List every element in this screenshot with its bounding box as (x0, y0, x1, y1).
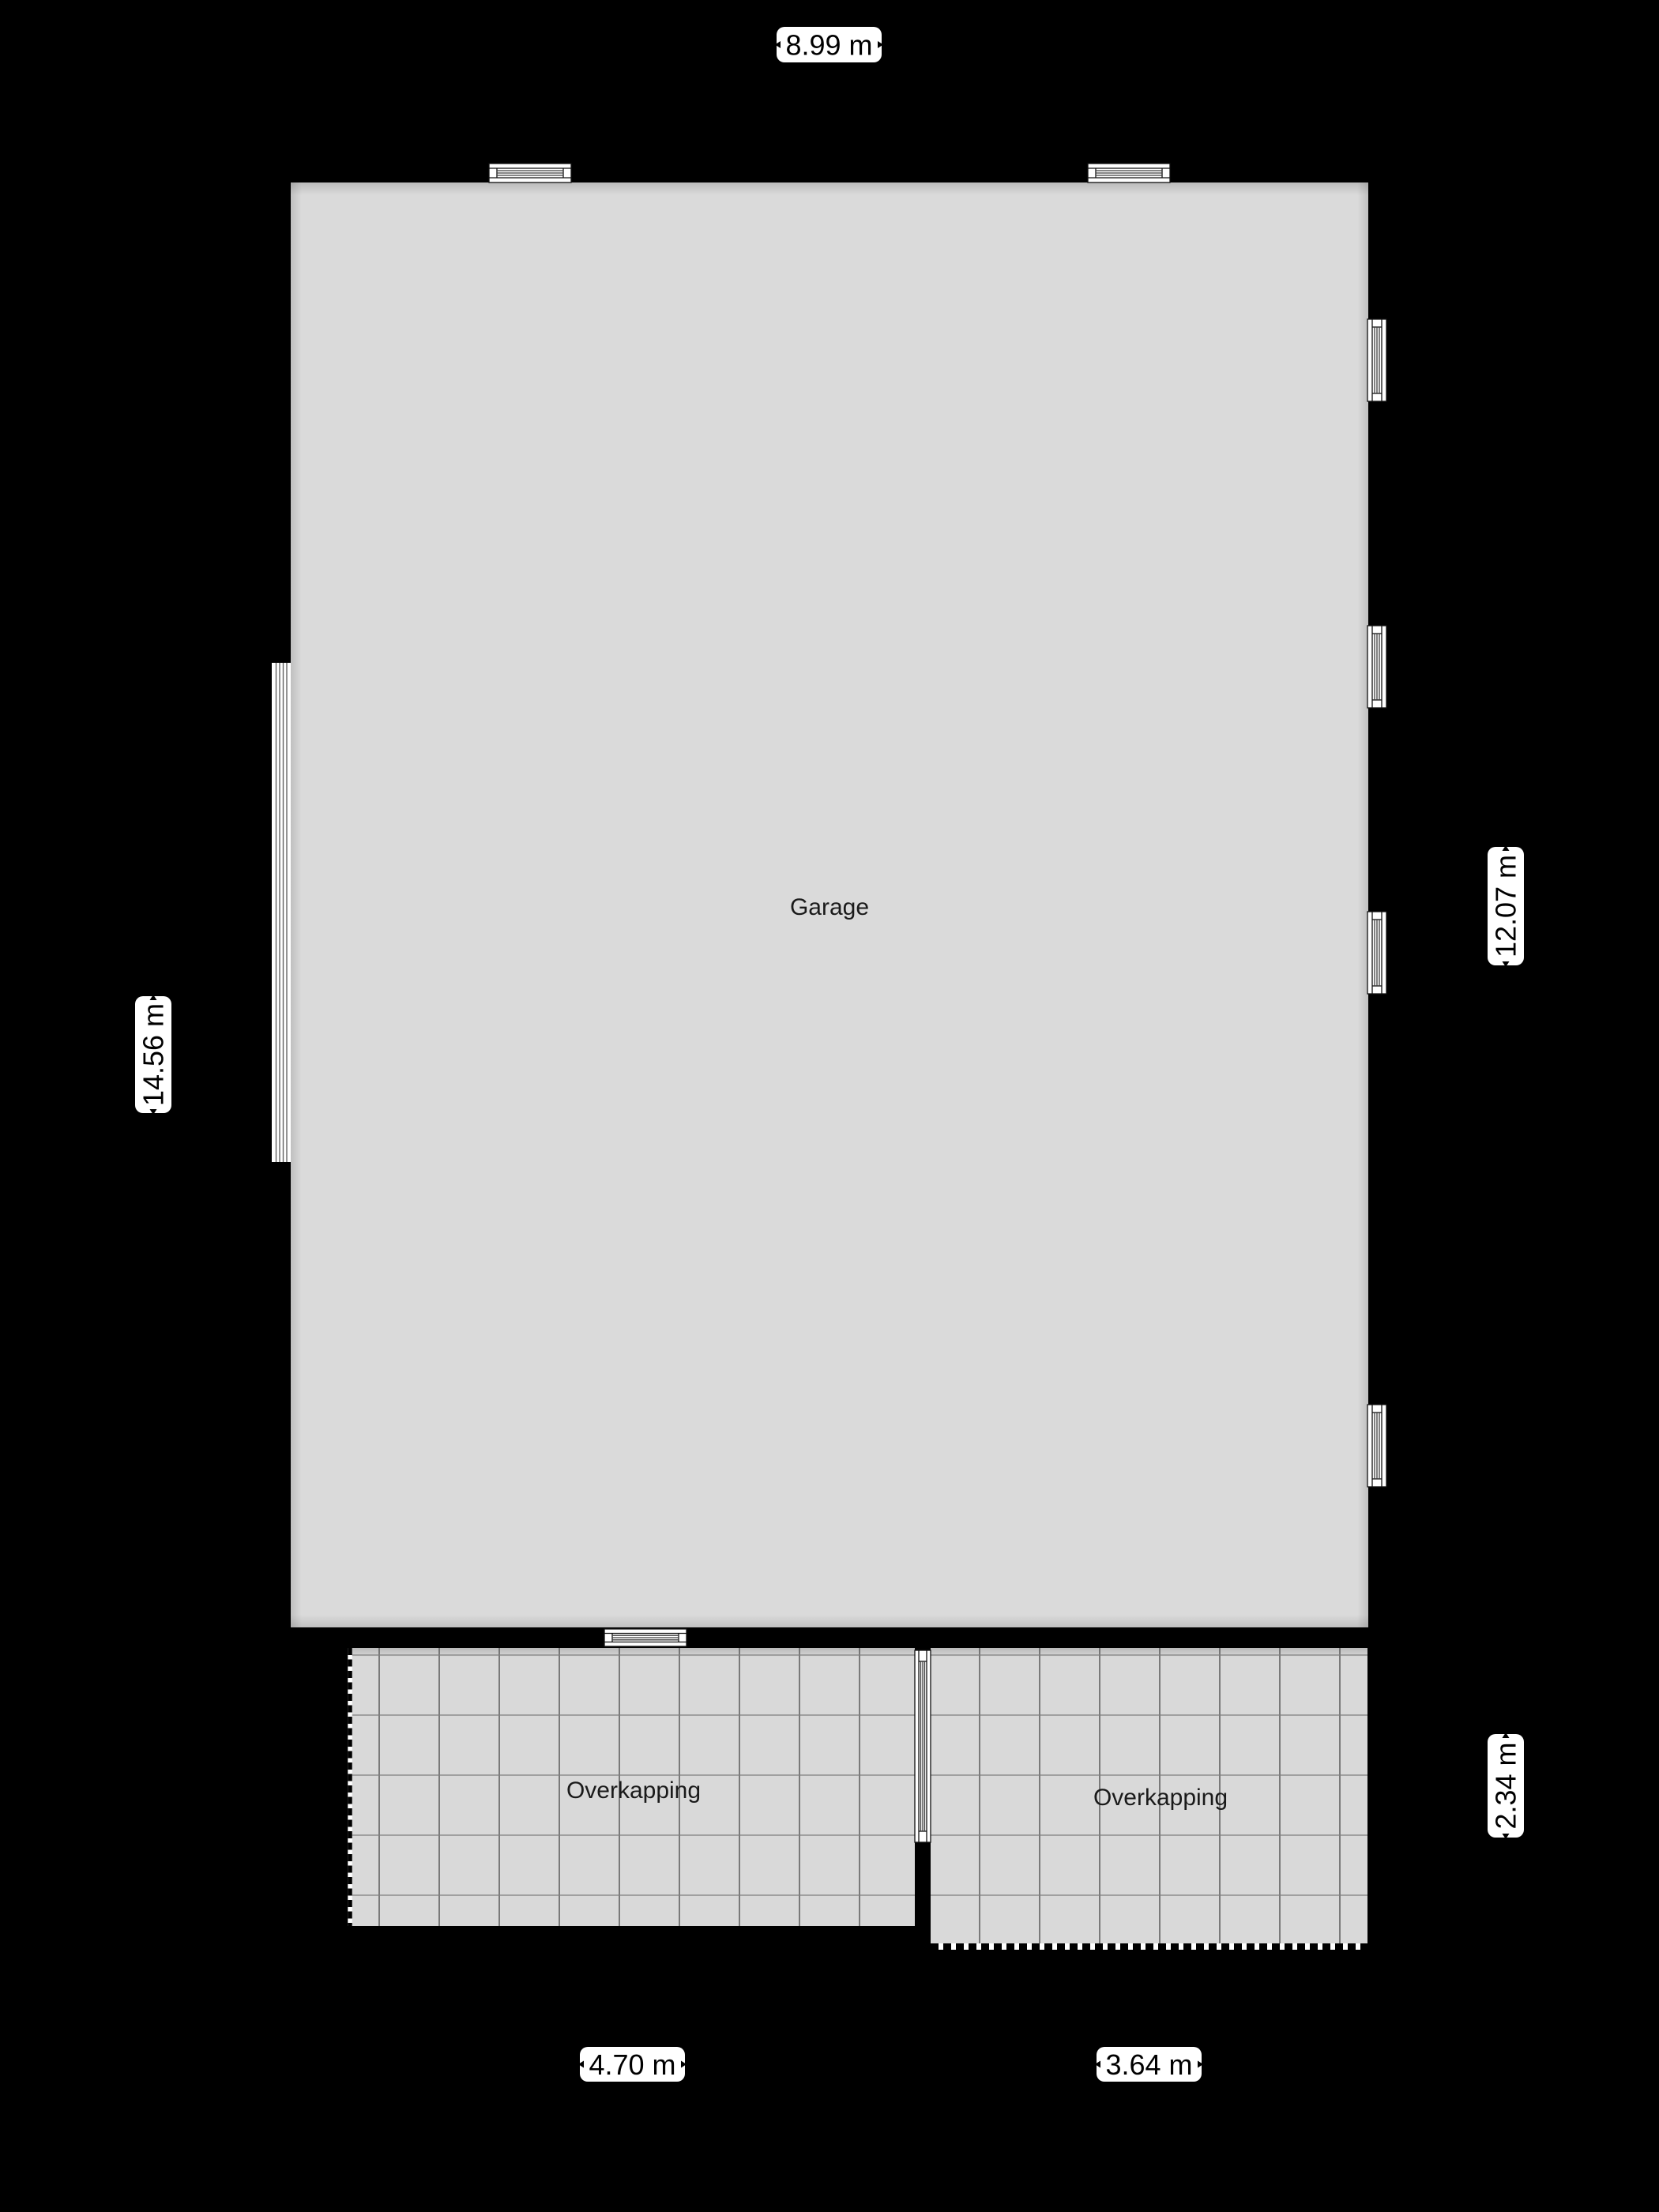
svg-text:12.07 m: 12.07 m (1490, 855, 1522, 957)
svg-text:14.56 m: 14.56 m (137, 1003, 170, 1106)
svg-text:3.64 m: 3.64 m (1105, 2048, 1192, 2081)
svg-text:2.34 m: 2.34 m (1490, 1742, 1522, 1829)
svg-text:4.70 m: 4.70 m (589, 2048, 675, 2081)
svg-text:Overkapping: Overkapping (566, 1777, 701, 1804)
svg-text:Overkapping: Overkapping (1093, 1785, 1228, 1811)
svg-text:8.99 m: 8.99 m (785, 29, 872, 62)
svg-text:Garage: Garage (790, 894, 869, 920)
